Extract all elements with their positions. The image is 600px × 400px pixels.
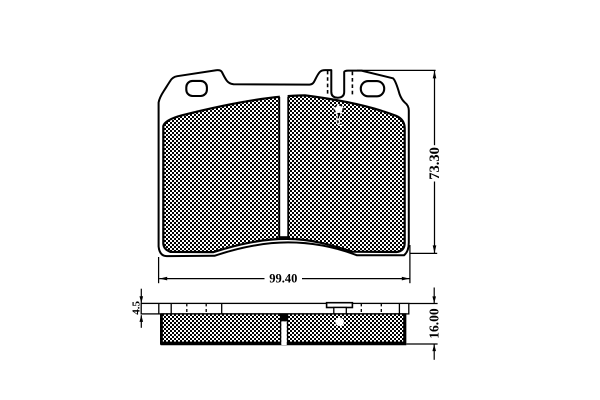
svg-text:4.5: 4.5 [131, 301, 143, 315]
svg-text:73.30: 73.30 [427, 147, 443, 180]
svg-text:16.00: 16.00 [426, 308, 441, 339]
svg-text:99.40: 99.40 [269, 272, 297, 286]
